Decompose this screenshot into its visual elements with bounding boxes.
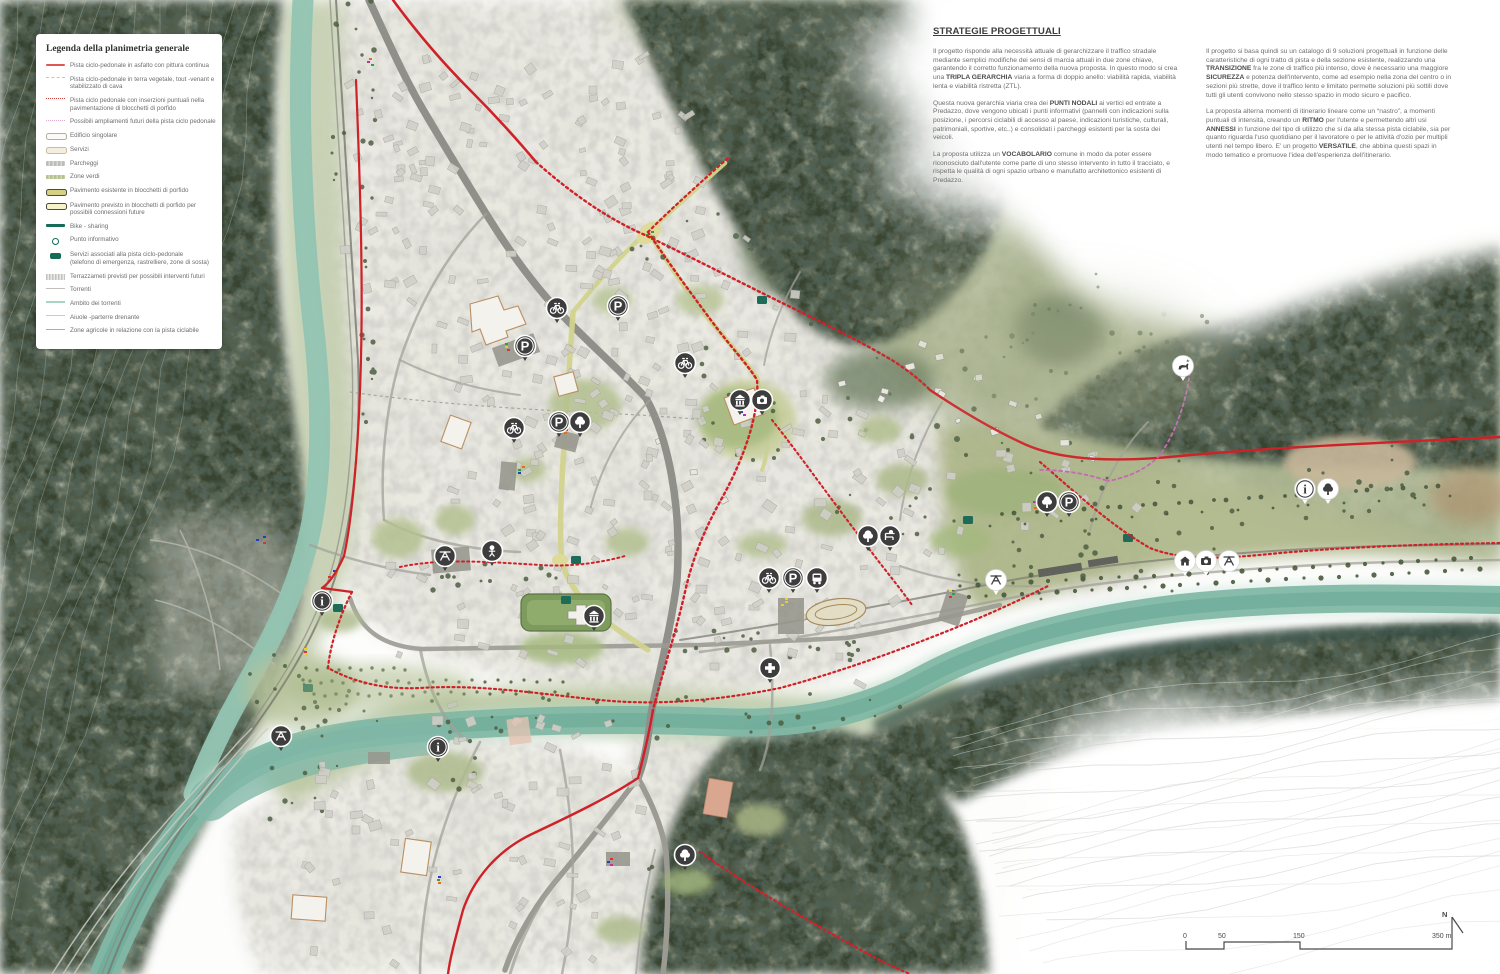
svg-text:50: 50 <box>1218 933 1226 940</box>
svg-text:P: P <box>1065 495 1074 510</box>
svg-text:P: P <box>555 415 564 430</box>
svg-text:i: i <box>1303 482 1307 497</box>
svg-text:i: i <box>436 740 440 755</box>
svg-text:150: 150 <box>1293 933 1305 940</box>
svg-text:350 m: 350 m <box>1432 933 1452 940</box>
svg-text:N: N <box>1442 910 1447 919</box>
svg-text:i: i <box>320 594 324 609</box>
svg-text:0: 0 <box>1183 933 1187 940</box>
svg-text:P: P <box>789 571 798 586</box>
svg-text:P: P <box>521 339 530 354</box>
svg-text:P: P <box>614 299 623 314</box>
